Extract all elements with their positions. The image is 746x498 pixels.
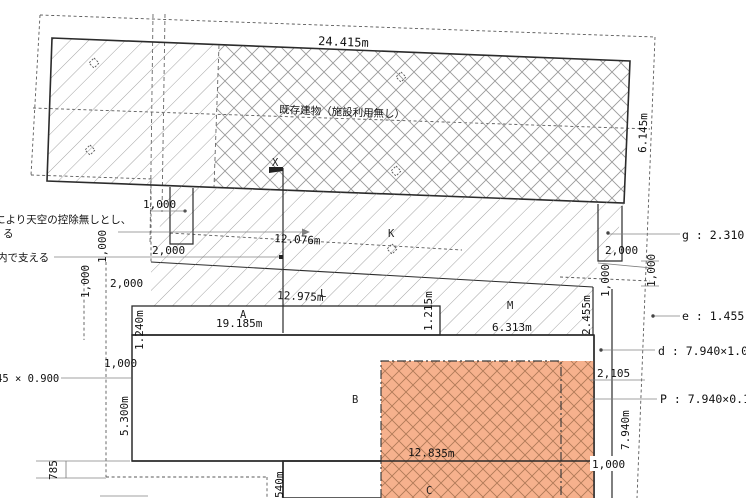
dim-building-width: 24.415m	[318, 34, 369, 50]
dim-1000-left-a: 1,000	[96, 230, 109, 263]
region-a	[132, 306, 440, 335]
region-label-m: M	[507, 300, 513, 312]
dim-m-line: 6.313m	[492, 321, 532, 334]
dim-2000-right: 2,000	[605, 244, 638, 257]
region-label-c: C	[426, 485, 432, 497]
dim-c-width: 540m	[273, 471, 286, 498]
callout-p: P : 7.940×0.10	[660, 392, 746, 406]
dim-right-height: 7.940m	[619, 410, 632, 450]
dim-l-line: 12.975m	[277, 289, 324, 304]
dim-1000-right-a: 1,000	[599, 264, 612, 297]
dim-785: 785	[47, 460, 60, 480]
callout-g: g : 2.310 ×	[682, 228, 746, 242]
note-line-2: る	[3, 228, 14, 240]
size-note: 45 × 0.900	[0, 373, 59, 385]
region-label-l: L	[320, 288, 326, 300]
existing-building	[47, 38, 630, 203]
dim-a-height-right: 1.215m	[422, 291, 435, 331]
note-line-1: により天空の控除無しとし、	[0, 213, 131, 226]
dim-1000-right-b: 1,000	[645, 254, 658, 287]
region-label-b: B	[352, 394, 358, 406]
region-label-k: K	[388, 228, 395, 240]
dim-k-line: 12.076m	[274, 232, 321, 247]
callout-d: d : 7.940×1.00	[658, 344, 746, 358]
dim-m-height: 2.455m	[580, 295, 593, 335]
dim-1000-bottom-right: 1,000	[592, 458, 625, 471]
existing-building-right-hatch	[214, 45, 630, 203]
dim-1000-b-top: 1,000	[104, 357, 137, 370]
note-line-3: 内で支える	[0, 251, 49, 264]
dim-1000-left-b: 1,000	[79, 265, 92, 298]
plan-canvas: 既存建物（施設利用無し） 24.415m 6.145m により天空の控除無しとし…	[0, 0, 746, 498]
region-label-a: A	[240, 309, 247, 321]
site-plan-drawing: 既存建物（施設利用無し） 24.415m 6.145m により天空の控除無しとし…	[0, 0, 746, 498]
callout-e: e : 1.455 ×	[682, 309, 746, 323]
dim-building-height: 6.145m	[636, 113, 650, 154]
plan-regions	[132, 306, 594, 498]
dim-1000-notch: 1,000	[143, 198, 176, 211]
dim-b-height: 5.300m	[118, 396, 131, 436]
existing-building-left-hatch	[47, 38, 219, 187]
crosshatch-overlay	[381, 361, 594, 498]
region-label-x: X	[272, 157, 279, 169]
dim-2000-left: 2,000	[110, 277, 143, 290]
dim-c-line: 12.835m	[408, 446, 455, 460]
dim-a-height: 1.240m	[133, 310, 146, 350]
dim-2000-notch: 2,000	[152, 244, 185, 257]
dim-2105: 2,105	[597, 367, 630, 380]
leader-dot-icon	[279, 255, 283, 259]
